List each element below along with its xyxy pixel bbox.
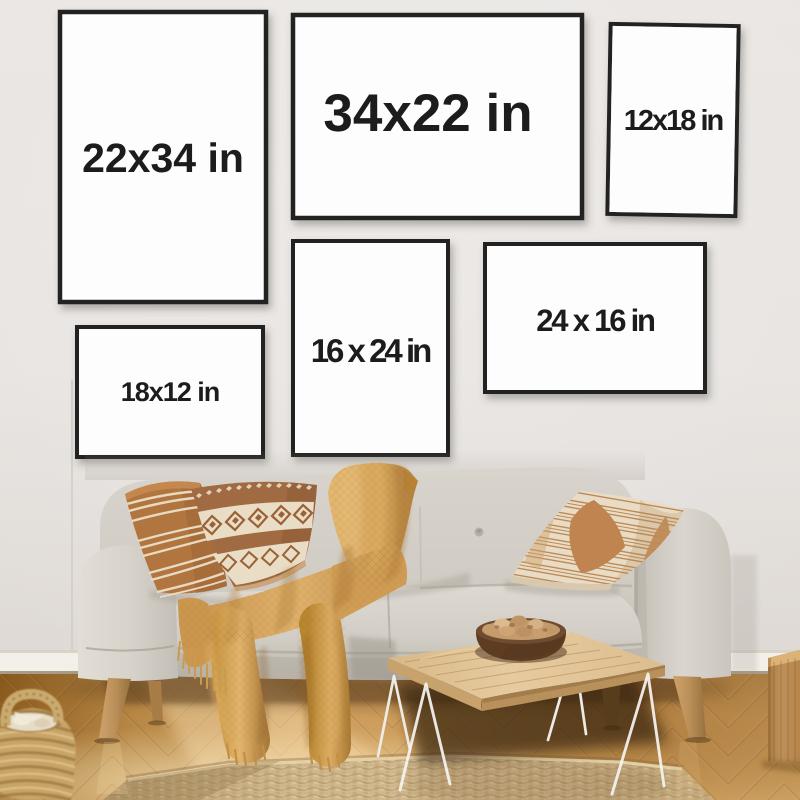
svg-text:12x18 in: 12x18 in [624,105,723,137]
svg-text:34x22 in: 34x22 in [323,84,532,143]
svg-text:16 x 24 in: 16 x 24 in [311,332,431,369]
svg-text:22x34 in: 22x34 in [82,135,244,181]
svg-text:18x12 in: 18x12 in [121,377,220,407]
svg-text:24 x 16 in: 24 x 16 in [536,303,655,338]
